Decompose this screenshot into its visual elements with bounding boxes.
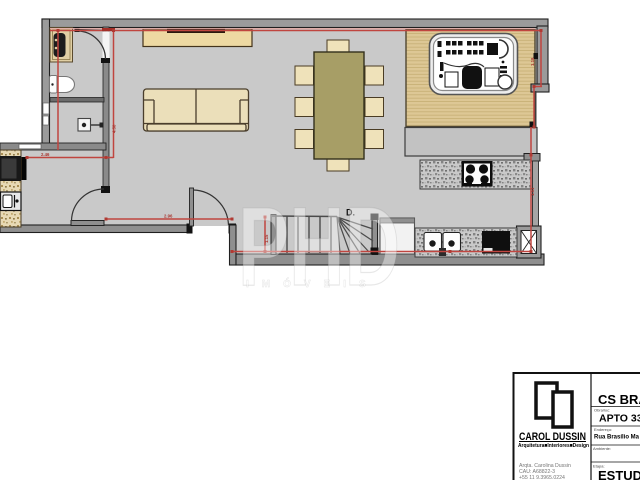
svg-text:Endereço:: Endereço: [594, 427, 612, 432]
svg-text:APTO 33 B: APTO 33 B [599, 413, 640, 425]
svg-text:PHD: PHD [238, 184, 400, 309]
svg-text:IMÓVEIS: IMÓVEIS [246, 277, 379, 290]
svg-text:1.51: 1.51 [530, 187, 535, 196]
svg-text:CS BRAS: CS BRAS [598, 392, 640, 407]
svg-text:Arquitetura■Interiores■Design: Arquitetura■Interiores■Design [518, 443, 590, 449]
svg-text:ESTUDO: ESTUDO [598, 468, 640, 480]
svg-text:Ambiente:: Ambiente: [593, 446, 611, 451]
svg-text:+55 11 9.3965.0224: +55 11 9.3965.0224 [519, 475, 565, 480]
svg-text:2.96: 2.96 [164, 214, 173, 219]
svg-text:1.18: 1.18 [530, 57, 535, 66]
svg-text:4.58: 4.58 [112, 124, 117, 133]
svg-text:Rua Brasílio Ma: Rua Brasílio Ma [594, 435, 640, 441]
svg-text:2.46: 2.46 [41, 152, 50, 157]
